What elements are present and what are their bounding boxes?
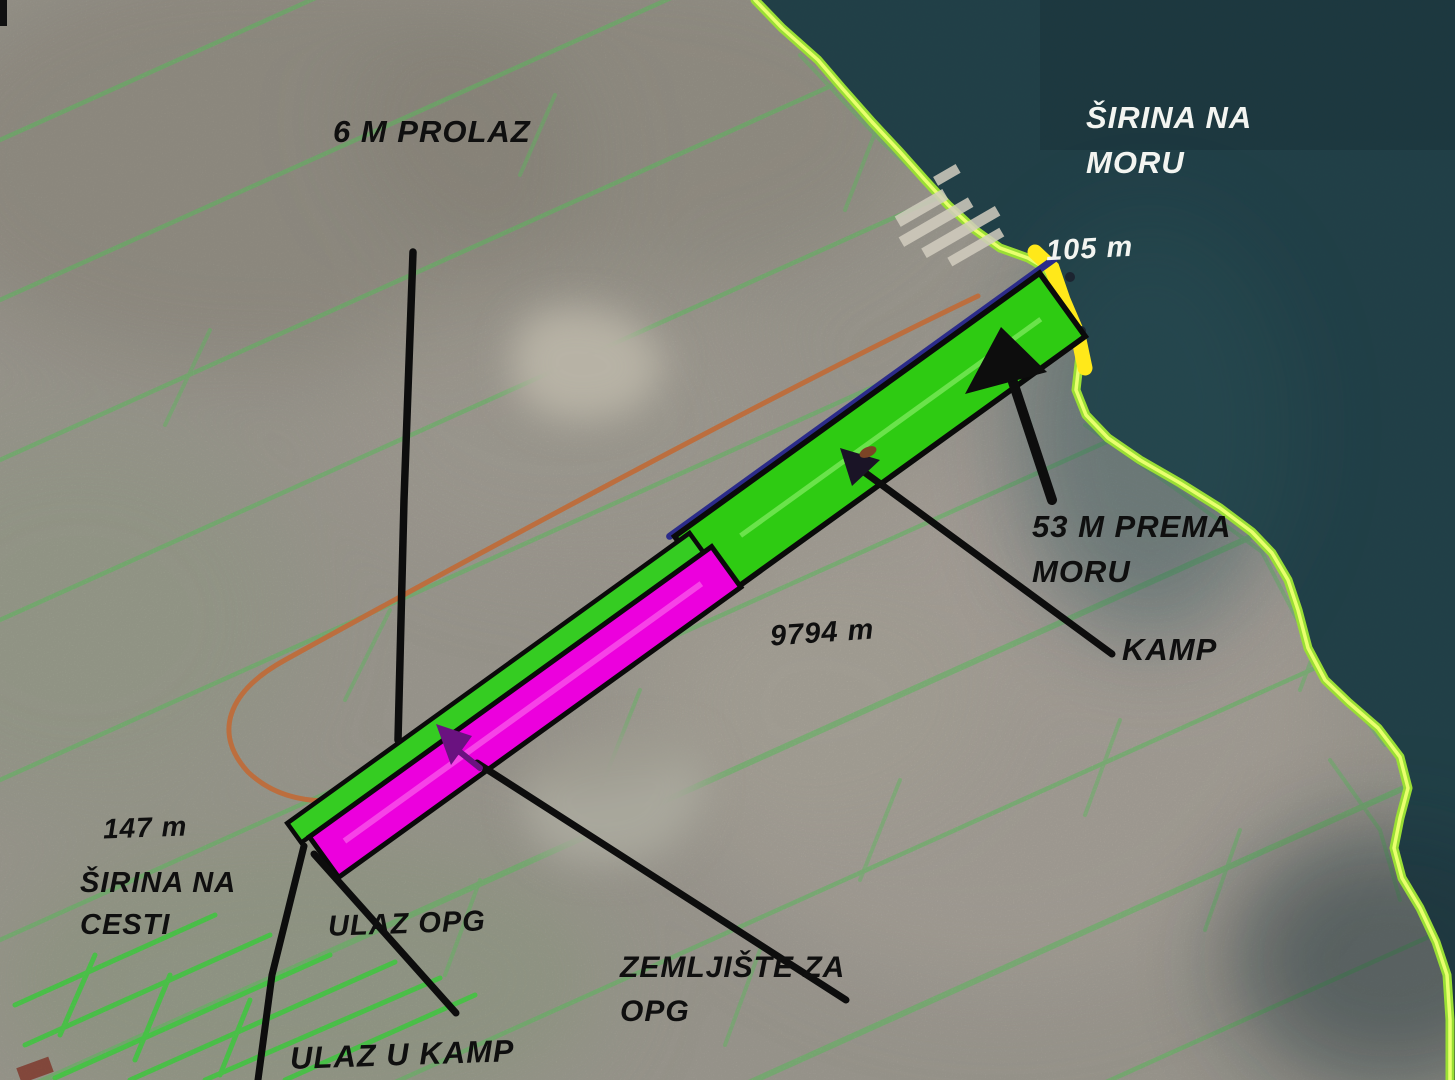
label-53m-prema-moru: 53 M PREMA MORU: [1032, 505, 1231, 595]
label-prolaz: 6 M PROLAZ: [333, 110, 531, 155]
label-105m: 105 m: [1045, 226, 1134, 273]
corner-notch: [0, 0, 7, 26]
aerial-map: 6 M PROLAZ ŠIRINA NA MORU 105 m 53 M PRE…: [0, 0, 1455, 1080]
label-ulaz-opg: ULAZ OPG: [327, 900, 486, 948]
label-ulaz-u-kamp: ULAZ U KAMP: [289, 1029, 515, 1080]
label-9794m: 9794 m: [769, 608, 876, 657]
label-sirina-na-moru: ŠIRINA NA MORU: [1086, 96, 1252, 186]
label-sirina-na-cesti: ŠIRINA NA CESTI: [80, 862, 236, 946]
label-kamp: KAMP: [1122, 628, 1217, 673]
label-147m: 147 m: [102, 807, 188, 851]
label-zemljiste-za-opg: ZEMLJIŠTE ZA OPG: [620, 946, 845, 1033]
